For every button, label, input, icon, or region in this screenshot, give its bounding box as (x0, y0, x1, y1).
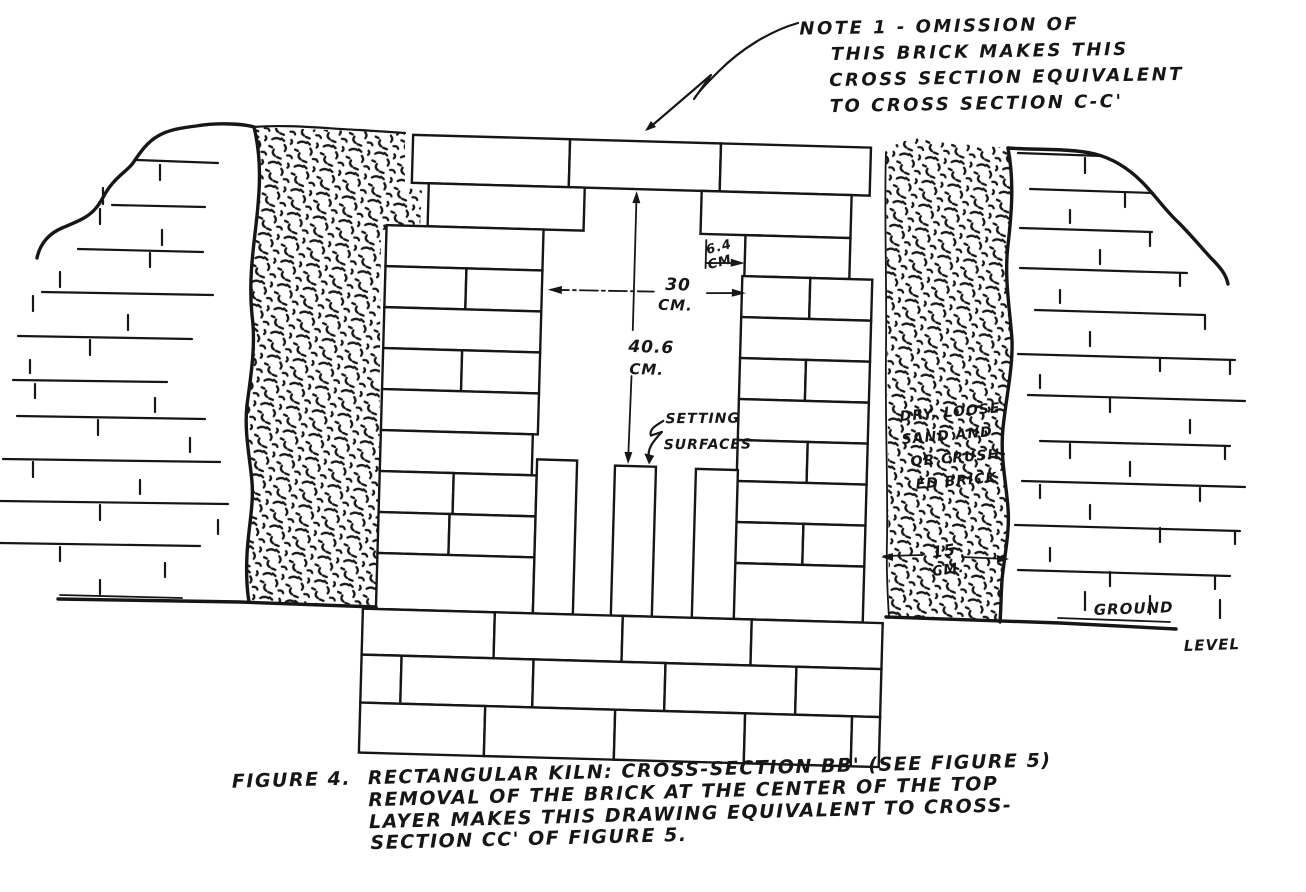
right-bank-courses (1015, 153, 1245, 576)
left-earth-bank (0, 124, 254, 594)
level-label: LEVEL (1184, 635, 1241, 655)
right-bank-outline (1008, 148, 1228, 284)
kiln-left-wall (376, 225, 544, 613)
note-line-2: THIS BRICK MAKES THIS (831, 39, 1129, 65)
corbel-brick-left (428, 183, 585, 230)
sand-layer-value: 15 (930, 540, 957, 562)
note-leader-line (648, 23, 798, 129)
right-bank-joints (1040, 158, 1235, 618)
chamber-width-unit: CM. (658, 296, 693, 315)
left-bank-outline (37, 124, 254, 258)
note-line-1: NOTE 1 - OMISSION OF (799, 14, 1079, 40)
right-sand-strip: DRY, LOOSE SAND AND OR CRUSH- ED BRICK 1… (881, 139, 1012, 622)
note-line-3: CROSS SECTION EQUIVALENT (829, 64, 1184, 91)
figure-caption: FIGURE 4. RECTANGULAR KILN: CROSS-SECTIO… (232, 749, 1054, 857)
setting-surfaces-line1: SETTING (665, 411, 740, 428)
ground-line-right (886, 617, 1176, 629)
setting-surfaces-line2: SURFACES (664, 437, 752, 454)
top-layer-brick-center-note1 (569, 139, 721, 191)
top-layer-brick-left (412, 135, 570, 187)
kiln-structure: 40.6 CM. 30 CM. 6.4 CM. SETTING SURFACES (359, 134, 896, 767)
setting-pillars (533, 459, 738, 619)
left-bank-courses (0, 160, 228, 546)
note-1: NOTE 1 - OMISSION OF THIS BRICK MAKES TH… (645, 12, 1185, 131)
right-earth-bank (1008, 148, 1245, 618)
ground-label: GROUND (1094, 598, 1174, 619)
pillar-left (533, 459, 577, 614)
dimension-chamber-width: 30 CM. (547, 272, 746, 317)
kiln-right-wall (733, 235, 874, 622)
scanned-figure-page: 40.6 CM. 30 CM. 6.4 CM. SETTING SURFACES (0, 0, 1306, 892)
top-layer-brick-right (720, 143, 871, 195)
caption-figure-label: FIGURE 4. (232, 768, 352, 793)
dimension-flue-channel: 6.4 CM. (702, 236, 746, 274)
kiln-cross-section-drawing: 40.6 CM. 30 CM. 6.4 CM. SETTING SURFACES (0, 0, 1306, 892)
corbel-brick-right (701, 191, 852, 238)
pillar-center (611, 466, 656, 617)
pillar-right (692, 469, 738, 619)
setting-surfaces-leader (648, 421, 663, 460)
chamber-width-value: 30 (665, 275, 691, 296)
chamber-height-unit: CM. (629, 360, 664, 379)
kiln-foundation (359, 609, 883, 767)
note-line-4: TO CROSS SECTION C-C' (830, 91, 1124, 117)
chamber-height-value: 40.6 (627, 337, 674, 358)
